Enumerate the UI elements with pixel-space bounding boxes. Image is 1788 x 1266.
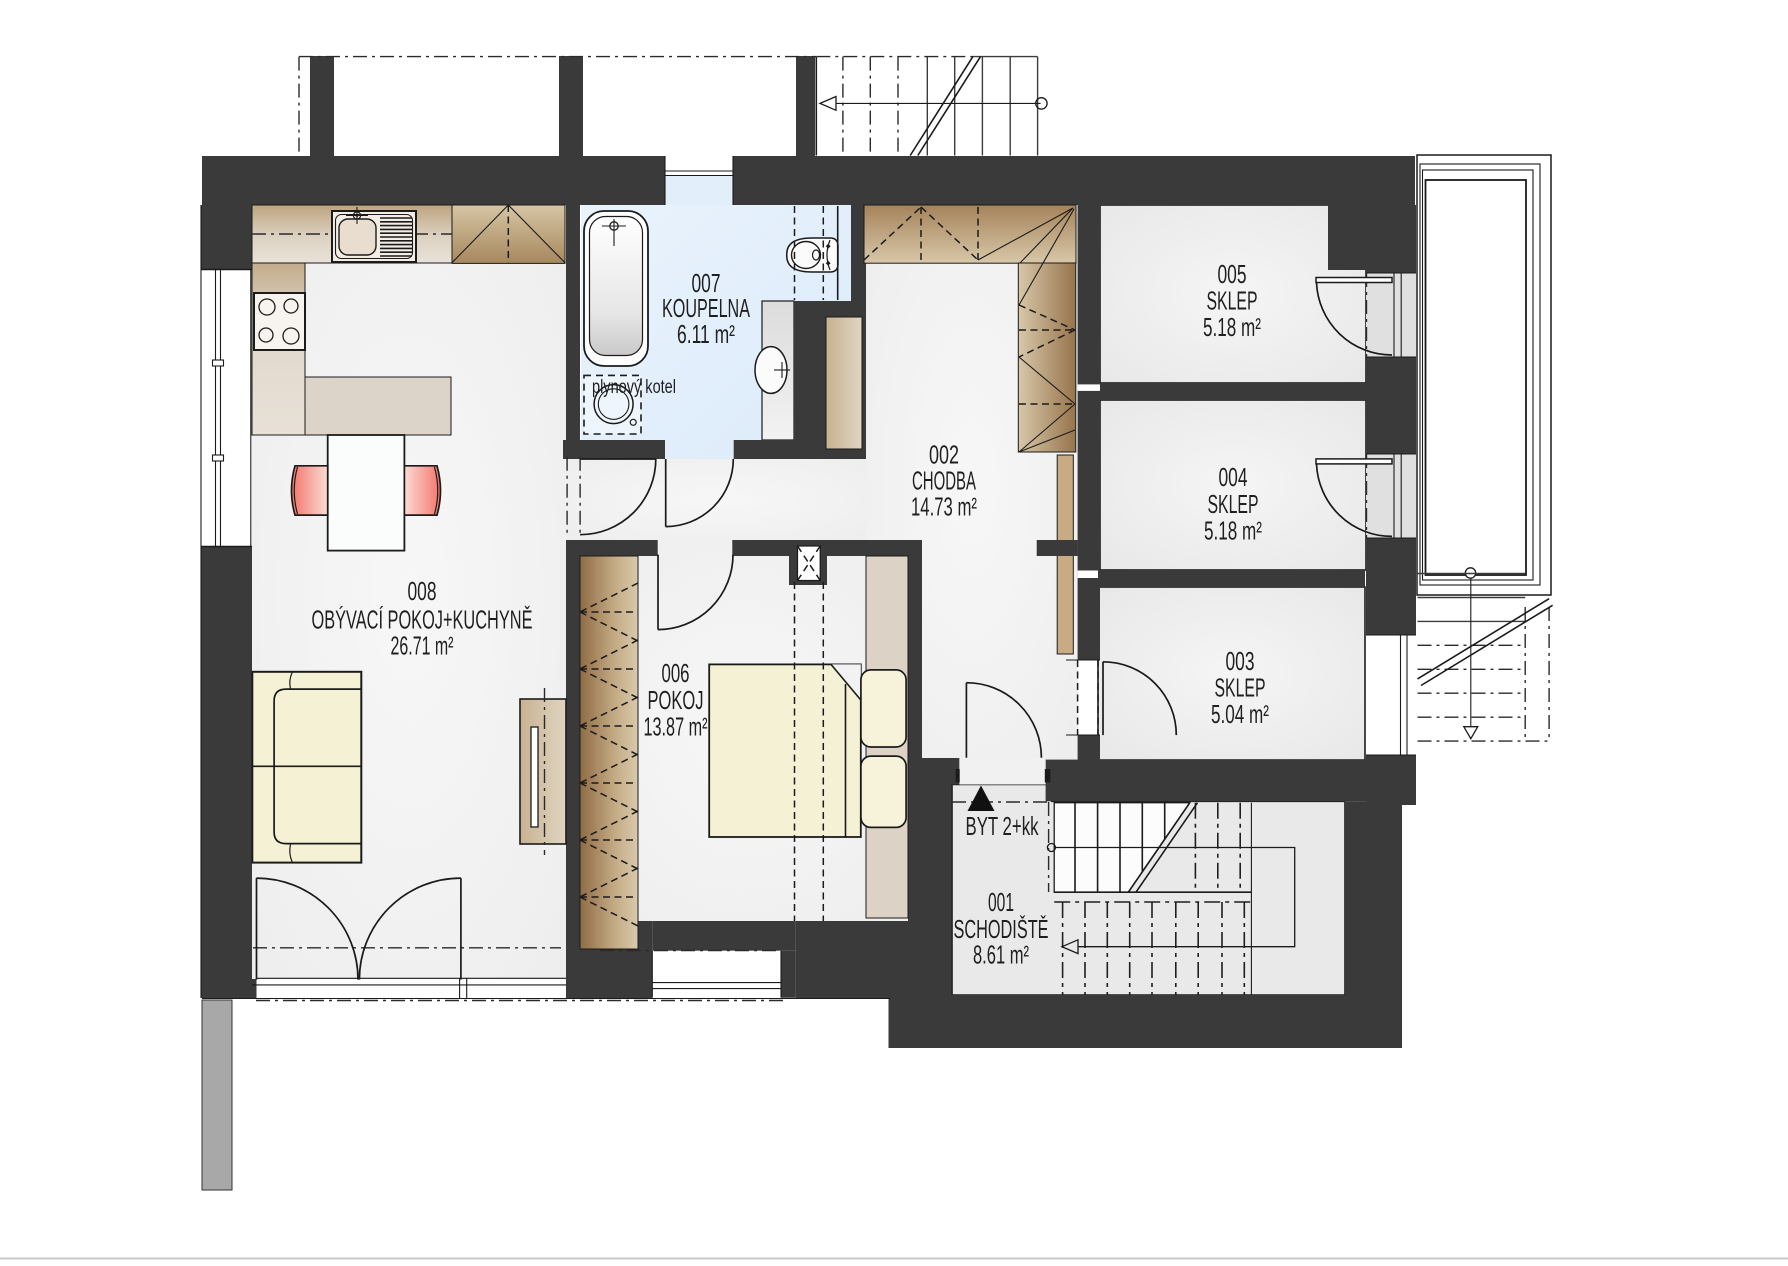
svg-text:006: 006 [662,658,690,688]
svg-text:14.73 m²: 14.73 m² [911,491,977,521]
svg-text:SKLEP: SKLEP [1215,673,1266,703]
svg-text:5.18 m²: 5.18 m² [1204,516,1262,546]
svg-text:SKLEP: SKLEP [1208,489,1259,519]
svg-text:BYT 2+kk: BYT 2+kk [966,811,1040,841]
svg-text:005: 005 [1218,259,1247,289]
svg-text:6.11 m²: 6.11 m² [677,319,735,349]
svg-text:004: 004 [1219,462,1248,492]
svg-text:001: 001 [988,887,1014,917]
svg-text:13.87 m²: 13.87 m² [644,711,708,741]
svg-text:8.61 m²: 8.61 m² [973,940,1029,970]
svg-text:003: 003 [1226,646,1255,676]
svg-text:plynový kotel: plynový kotel [592,377,676,398]
svg-text:008: 008 [408,576,437,606]
svg-text:5.18 m²: 5.18 m² [1203,312,1261,342]
svg-text:5.04 m²: 5.04 m² [1211,699,1269,729]
svg-text:26.71 m²: 26.71 m² [391,631,454,661]
svg-text:SKLEP: SKLEP [1207,286,1258,316]
